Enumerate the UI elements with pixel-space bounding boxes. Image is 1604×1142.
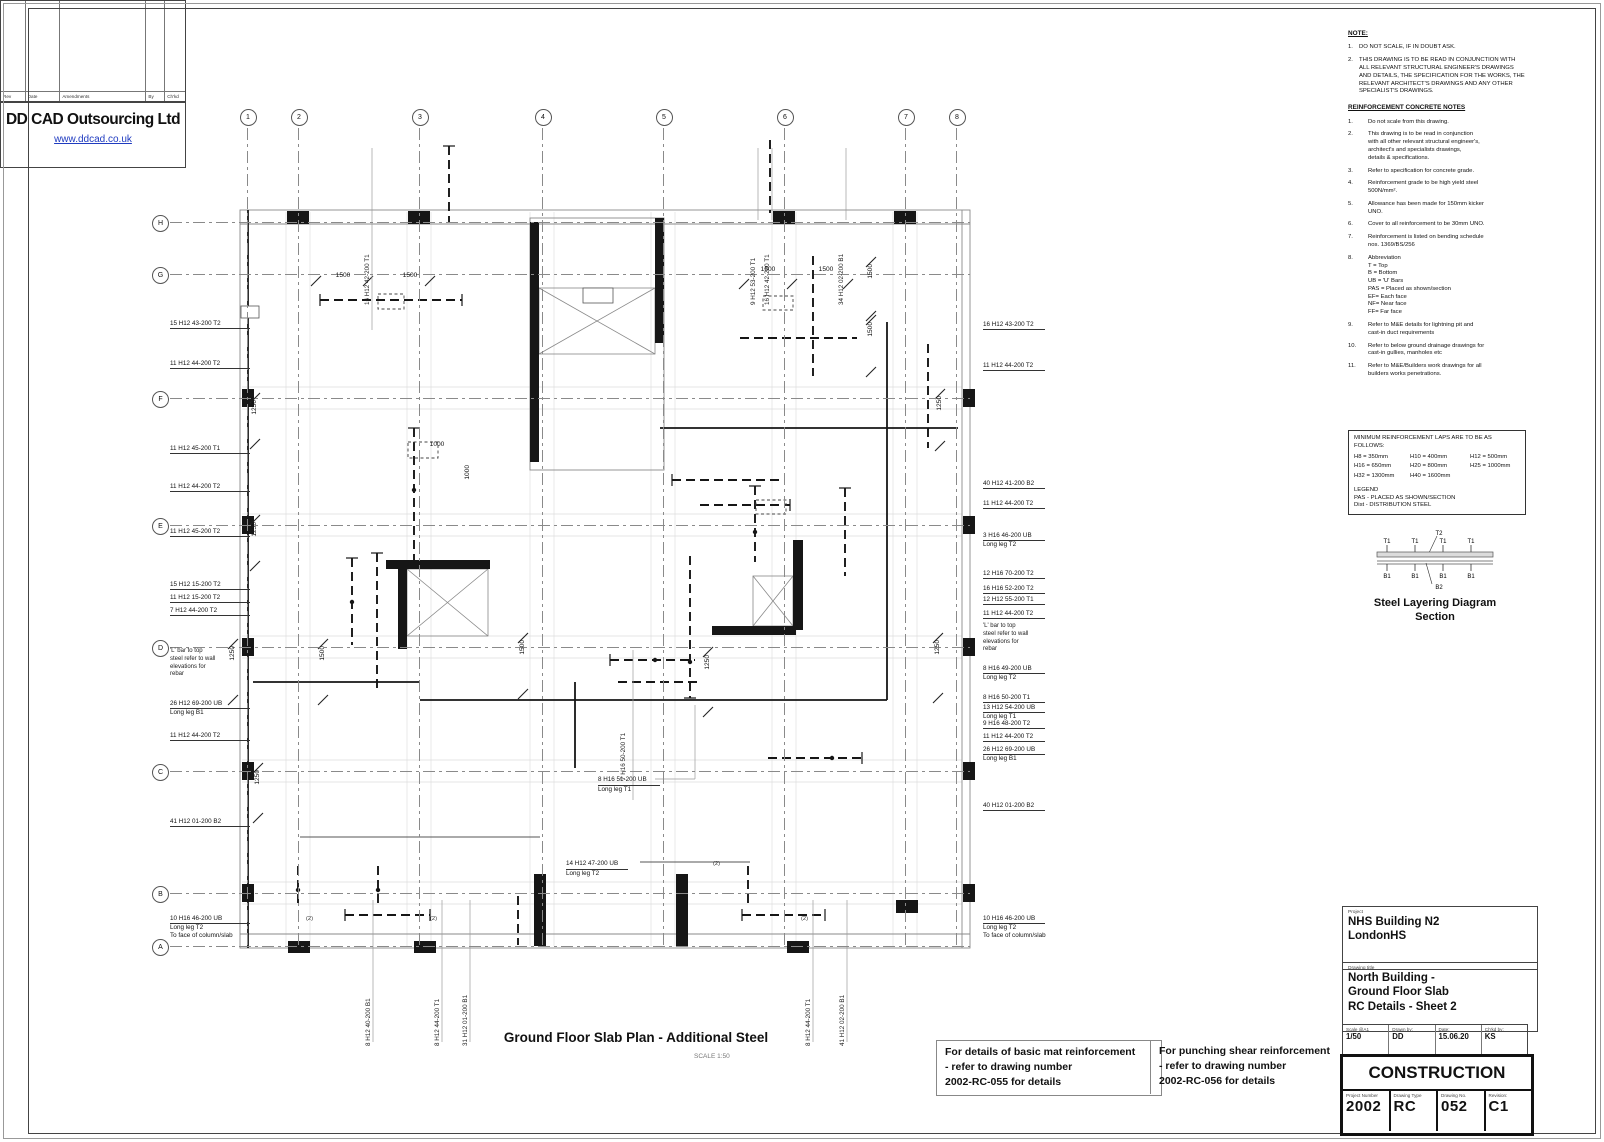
rebar-label: 14 H12 47-200 UBLong leg T2 (566, 860, 628, 878)
b2-label: B2 (1435, 585, 1443, 591)
note-number: 6. (1348, 221, 1368, 229)
legend-lines: PAS - PLACED AS SHOWN/SECTIONDist - DIST… (1354, 495, 1520, 511)
grid-row-line (170, 647, 970, 648)
note-number: 1. (1348, 44, 1359, 52)
grid-row-line (170, 525, 970, 526)
lap-value: H8 = 350mm (1354, 454, 1410, 462)
drawing-title: North Building -Ground Floor SlabRC Deta… (1348, 971, 1532, 1014)
rc-note-item: 3.Refer to specification for concrete gr… (1348, 168, 1526, 176)
legend-line: Dist - DISTRIBUTION STEEL (1354, 502, 1520, 510)
general-notes: 1.DO NOT SCALE, IF IN DOUBT ASK.2.THIS D… (1348, 44, 1526, 96)
bar-ref: (2) (306, 916, 313, 922)
dim-label: 1500 (519, 640, 526, 655)
meta-value: DD (1392, 1032, 1431, 1041)
note-number: 7. (1348, 234, 1368, 250)
note-text: Refer to specification for concrete grad… (1368, 168, 1474, 176)
wall-openings (241, 288, 613, 318)
b1-label: B1 (1467, 574, 1475, 580)
plan-linework (0, 0, 1340, 1142)
grid-bubble: 8 (949, 109, 966, 126)
drawing-numbers: Project Number2002Drawing TypeRCDrawing … (1343, 1091, 1531, 1131)
dim-label: 1500 (867, 264, 874, 279)
number-value: 2002 (1346, 1098, 1386, 1115)
rebar-label: 3 H16 46-200 UBLong leg T2 (983, 532, 1045, 549)
note-text: Refer to below ground drainage drawings … (1368, 343, 1484, 359)
rc-note-item: 7.Reinforcement is listed on bending sch… (1348, 234, 1526, 250)
note-text: Abbreviation T = Top B = Bottom UB = 'U'… (1368, 255, 1451, 317)
status-block: CONSTRUCTION Project Number2002Drawing T… (1340, 1054, 1534, 1136)
rebar-label: 11 H12 45-200 T1 (170, 445, 250, 454)
rc-note-item: 4.Reinforcement grade to be high yield s… (1348, 180, 1526, 196)
note-text: Refer to M&E/Builders work drawings for … (1368, 363, 1482, 379)
lap-value: H16 = 650mm (1354, 463, 1410, 471)
grid-row-line (170, 222, 970, 223)
grid-col-line (298, 128, 299, 948)
grid-row-line (170, 893, 970, 894)
rebar-label: 11 H12 44-200 T2 (983, 610, 1045, 619)
t1-label: T1 (1383, 539, 1391, 545)
dim-label: 1000 (430, 441, 445, 448)
note-text: Cover to all reinforcement to be 30mm UN… (1368, 221, 1485, 229)
plan-scale-note: SCALE 1:50 (694, 1053, 730, 1060)
b1-label: B1 (1411, 574, 1419, 580)
note-number: 2. (1348, 131, 1368, 162)
floor-plan: Ground Floor Slab Plan - Additional Stee… (0, 0, 1340, 1142)
note-number: 9. (1348, 322, 1368, 338)
meta-cell: Date:15.06.20 (1436, 1025, 1482, 1055)
rebar-label: 12 H12 55-200 T1 (983, 596, 1045, 605)
dim-label: 1500 (819, 266, 834, 273)
notes-column: NOTE: 1.DO NOT SCALE, IF IN DOUBT ASK.2.… (1348, 30, 1526, 384)
grid-bubble: 6 (777, 109, 794, 126)
grid-bubble: E (152, 518, 169, 535)
laps-table: MINIMUM REINFORCEMENT LAPS ARE TO BE AS … (1348, 430, 1526, 515)
drawing-title-line: North Building - (1348, 971, 1532, 985)
note-text: Allowance has been made for 150mm kicker… (1368, 201, 1484, 217)
note-heading: NOTE: (1348, 30, 1526, 38)
grid-col-line (956, 128, 957, 948)
rebar-label: 11 H12 44-200 T2 (983, 500, 1045, 509)
bar-ref: (2) (430, 916, 437, 922)
rebar-label-vertical: 8 H12 40-200 B1 (365, 958, 372, 1046)
rebar-label: 7 H12 44-200 T2 (170, 607, 250, 616)
slab-edge-lines (300, 837, 750, 862)
rebar-label: 11 H12 44-200 T2 (983, 733, 1045, 742)
dim-label: 1250 (704, 655, 711, 670)
rc-notes-list: 1.Do not scale from this drawing.2.This … (1348, 119, 1526, 379)
rebar-label-vertical: 9 H12 53-200 T1 (750, 145, 757, 305)
meta-value: 15.06.20 (1439, 1032, 1478, 1041)
bar-ref: (2) (801, 916, 808, 922)
bar-dots (296, 488, 834, 892)
bar-end-ticks (320, 146, 862, 921)
drawing-title-line: Ground Floor Slab (1348, 985, 1532, 999)
meta-cell: Ch'kd by:KS (1482, 1025, 1527, 1055)
grid-bubble: A (152, 939, 169, 956)
rebar-label-vertical: 8 H12 44-200 T1 (805, 958, 812, 1046)
project-name-line: LondonHS (1348, 929, 1532, 943)
grid-bubble: F (152, 391, 169, 408)
rc-note-item: 8.Abbreviation T = Top B = Bottom UB = '… (1348, 255, 1526, 317)
rebar-label: 26 H12 69-200 UBLong leg B1 (983, 746, 1045, 763)
note-text: Reinforcement is listed on bending sched… (1368, 234, 1484, 250)
grid-col-line (419, 128, 420, 948)
steel-layering-diagram: T2 T1 T1 T1 T1 B1 B1 B1 B1 B2 Steel La (1360, 528, 1510, 624)
rebar-label: 10 H16 46-200 UBLong leg T2To face of co… (983, 915, 1046, 941)
grid-col-line (784, 128, 785, 948)
rebar-label: 11 H12 44-200 T2 (170, 360, 250, 369)
note-text: DO NOT SCALE, IF IN DOUBT ASK. (1359, 44, 1456, 52)
leader-lines (372, 148, 847, 1042)
rc-note-item: 6.Cover to all reinforcement to be 30mm … (1348, 221, 1526, 229)
note-number: 11. (1348, 363, 1368, 379)
t1-label: T1 (1467, 539, 1475, 545)
grid-bubble: B (152, 886, 169, 903)
grid-bubble: D (152, 640, 169, 657)
note-text: This drawing is to be read in conjunctio… (1368, 131, 1480, 162)
reference-note-box: For punching shear reinforcement- refer … (1150, 1040, 1353, 1094)
note-number: 10. (1348, 343, 1368, 359)
dim-arrow-slashes (228, 257, 945, 823)
dim-label: 1000 (464, 465, 471, 480)
note-number: 8. (1348, 255, 1368, 317)
b1-label: B1 (1383, 574, 1391, 580)
note-text: Do not scale from this drawing. (1368, 119, 1449, 127)
rebar-label-vertical: 41 H12 02-200 B1 (839, 958, 846, 1046)
grid-row-line (170, 274, 970, 275)
number-value: 052 (1441, 1098, 1481, 1115)
number-cell: Revision:C1 (1486, 1091, 1532, 1131)
rebar-label: 11 H12 45-200 T2 (170, 528, 250, 537)
grid-bubble: 4 (535, 109, 552, 126)
rebar-label: 16 H12 43-200 T2 (983, 321, 1045, 330)
dim-label: 1250 (934, 640, 941, 655)
project-name-line: NHS Building N2 (1348, 915, 1532, 929)
note-text: THIS DRAWING IS TO BE READ IN CONJUNCTIO… (1359, 57, 1526, 96)
dim-label: 1250 (251, 400, 258, 415)
grid-col-line (542, 128, 543, 948)
rc-note-item: 2.This drawing is to be read in conjunct… (1348, 131, 1526, 162)
drawing-title-line: RC Details - Sheet 2 (1348, 1000, 1532, 1014)
laps-values: H8 = 350mmH10 = 400mmH12 = 500mmH16 = 65… (1354, 454, 1520, 483)
grid-bubble: G (152, 267, 169, 284)
lap-value: H20 = 800mm (1410, 463, 1470, 471)
drawing-title-block: Drawing title North Building -Ground Flo… (1342, 962, 1538, 1032)
rebar-label-vertical: 34 H12 02-200 B1 (838, 145, 845, 305)
grid-bubble: 5 (656, 109, 673, 126)
note-number: 4. (1348, 180, 1368, 196)
rebar-label: 40 H12 01-200 B2 (983, 802, 1045, 811)
meta-value: KS (1485, 1032, 1524, 1041)
lap-value: H10 = 400mm (1410, 454, 1470, 462)
dim-label: 1250 (936, 396, 943, 411)
grid-col-line (663, 128, 664, 948)
dim-label: 1500 (403, 272, 418, 279)
dim-label: 1500 (761, 266, 776, 273)
lap-value: H40 = 1600mm (1410, 473, 1470, 481)
rebar-label: 40 H12 41-200 B2 (983, 480, 1045, 489)
rebar-label: 15 H12 15-200 T2 (170, 581, 250, 590)
grid-row-line (170, 771, 970, 772)
layering-sketch: T2 T1 T1 T1 T1 B1 B1 B1 B1 B2 (1360, 528, 1510, 592)
dim-label: 1500 (867, 322, 874, 337)
rebar-label: 15 H12 43-200 T2 (170, 320, 250, 329)
lap-value: H12 = 500mm (1470, 454, 1526, 462)
lap-value: H32 = 1300mm (1354, 473, 1410, 481)
rebar-label-vertical: 31 H12 01-200 B1 (462, 958, 469, 1046)
drawing-sheet: Ground Floor Slab Plan - Additional Stee… (0, 0, 1604, 1142)
rebar-label: 'L' bar to topsteel refer to wallelevati… (983, 623, 1028, 654)
rebar-label: 11 H12 44-200 T2 (170, 732, 250, 741)
grid-bubble: 7 (898, 109, 915, 126)
general-note-item: 2.THIS DRAWING IS TO BE READ IN CONJUNCT… (1348, 57, 1526, 96)
legend-title: LEGEND (1354, 487, 1520, 495)
grid-bubble: H (152, 215, 169, 232)
rebar-label: 11 H12 44-200 T2 (983, 362, 1045, 371)
rebar-label: 11 H12 44-200 T2 (170, 483, 250, 492)
rebar-label: 8 H16 50-200 T1 (983, 694, 1045, 703)
grid-row-line (170, 946, 970, 947)
rebar-label: 16 H16 52-200 T2 (983, 585, 1045, 594)
rebar-label: 26 H12 69-200 UBLong leg B1 (170, 700, 250, 717)
number-cell: Project Number2002 (1343, 1091, 1391, 1131)
grid-col-line (905, 128, 906, 948)
core-hatch (407, 288, 793, 636)
column-blocks (242, 211, 975, 953)
project-name: NHS Building N2LondonHS (1348, 915, 1532, 944)
rc-note-item: 1.Do not scale from this drawing. (1348, 119, 1526, 127)
dim-label: 1500 (336, 272, 351, 279)
rc-note-item: 11.Refer to M&E/Builders work drawings f… (1348, 363, 1526, 379)
general-note-item: 1.DO NOT SCALE, IF IN DOUBT ASK. (1348, 44, 1526, 52)
dim-label: 1250 (254, 770, 261, 785)
number-cell: Drawing No.052 (1438, 1091, 1486, 1131)
t1-label: T1 (1439, 539, 1447, 545)
column-strip-lines (242, 212, 962, 946)
bar-ref: (2) (713, 861, 720, 867)
dim-label: 1250 (229, 646, 236, 661)
rebar-label-vertical: 8 H12 44-200 T1 (434, 958, 441, 1046)
rebar-label: 9 H16 48-200 T2 (983, 720, 1045, 729)
rc-note-item: 10.Refer to below ground drainage drawin… (1348, 343, 1526, 359)
rebar-label: 8 H16 49-200 UBLong leg T2 (983, 665, 1045, 682)
meta-value: 1/50 (1346, 1032, 1385, 1041)
dashed-outline-boxes (378, 294, 793, 514)
rebar-label-vertical: 16 H12 42-200 T1 (364, 145, 371, 305)
meta-cell: Scale @A11/50 (1343, 1025, 1389, 1055)
plan-title: Ground Floor Slab Plan - Additional Stee… (436, 1030, 836, 1045)
number-cell: Drawing TypeRC (1391, 1091, 1439, 1131)
rc-note-item: 5.Allowance has been made for 150mm kick… (1348, 201, 1526, 217)
rebar-label-vertical: 16 H12 42-200 T1 (764, 145, 771, 305)
number-value: C1 (1489, 1098, 1529, 1115)
note-number: 1. (1348, 119, 1368, 127)
meta-cell: Drawn by:DD (1389, 1025, 1435, 1055)
grid-row-line (170, 398, 970, 399)
dim-label: 1250 (251, 522, 258, 537)
note-text: Reinforcement grade to be high yield ste… (1368, 180, 1478, 196)
rebar-label-vertical: 7 H16 50-200 T1 (620, 700, 627, 780)
legend-line: PAS - PLACED AS SHOWN/SECTION (1354, 495, 1520, 503)
rebar-dashed-bars (298, 140, 928, 945)
note-number: 2. (1348, 57, 1359, 96)
layering-title: Steel Layering Diagram (1360, 596, 1510, 610)
rebar-label: 'L' bar to topsteel refer to wallelevati… (170, 648, 215, 679)
reference-note-box: For details of basic mat reinforcement- … (936, 1040, 1162, 1096)
grid-bubble: C (152, 764, 169, 781)
drawing-meta: Scale @A11/50Drawn by:DDDate:15.06.20Ch'… (1342, 1024, 1528, 1056)
b1-label: B1 (1439, 574, 1447, 580)
dim-label: 1500 (319, 646, 326, 661)
grid-bubble: 1 (240, 109, 257, 126)
rebar-label: 10 H16 46-200 UBLong leg T2To face of co… (170, 915, 250, 941)
rebar-label: 8 H16 51-200 UBLong leg T1 (598, 776, 660, 794)
layering-subtitle: Section (1360, 610, 1510, 624)
rebar-label: 11 H12 15-200 T2 (170, 594, 250, 603)
status-label: CONSTRUCTION (1343, 1057, 1531, 1091)
rc-note-item: 9.Refer to M&E details for lightning pit… (1348, 322, 1526, 338)
note-number: 3. (1348, 168, 1368, 176)
laps-heading: MINIMUM REINFORCEMENT LAPS ARE TO BE AS … (1354, 435, 1520, 451)
note-number: 5. (1348, 201, 1368, 217)
lap-value: H25 = 1000mm (1470, 463, 1526, 471)
legend: LEGEND PAS - PLACED AS SHOWN/SECTIONDist… (1354, 487, 1520, 510)
rebar-label: 13 H12 54-200 UBLong leg T1 (983, 704, 1045, 721)
rc-notes-heading: REINFORCEMENT CONCRETE NOTES (1348, 104, 1526, 112)
rebar-label: 12 H16 70-200 T2 (983, 570, 1045, 579)
number-value: RC (1394, 1098, 1434, 1115)
project-block: Project NHS Building N2LondonHS (1342, 906, 1538, 970)
note-text: Refer to M&E details for lightning pit a… (1368, 322, 1473, 338)
grid-bubble: 2 (291, 109, 308, 126)
rebar-label: 41 H12 01-200 B2 (170, 818, 250, 827)
grid-bubble: 3 (412, 109, 429, 126)
t1-label: T1 (1411, 539, 1419, 545)
